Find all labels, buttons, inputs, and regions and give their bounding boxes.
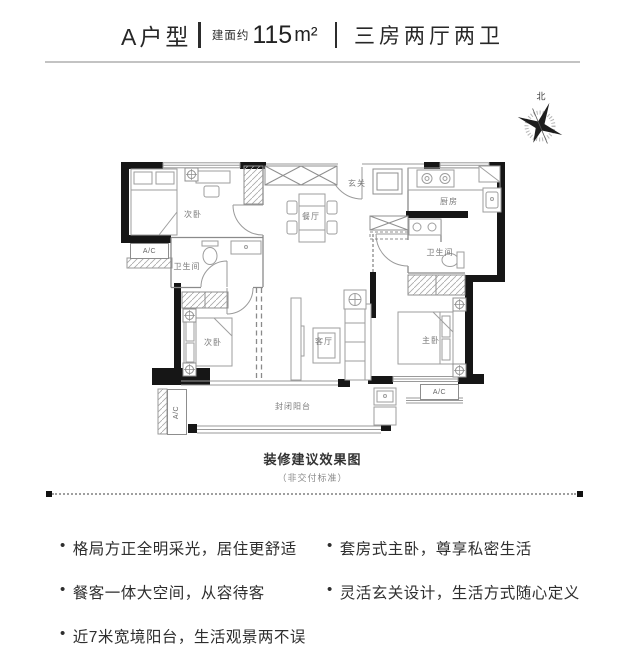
- ac-unit-balcony-left: A/C: [167, 389, 187, 435]
- bullet-icon: •: [60, 537, 66, 554]
- room-label-bath-left: 卫生间: [174, 263, 201, 271]
- feature-text: 灵活玄关设计，生活方式随心定义: [340, 581, 580, 603]
- dotted-divider-end-left: [46, 491, 52, 497]
- room-label-balcony: 封闭阳台: [275, 403, 311, 411]
- dotted-divider-end-right: [577, 491, 583, 497]
- feature-item: • 近7米宽境阳台，生活观景两不误: [60, 625, 306, 647]
- room-label-bedroom-top: 次卧: [184, 211, 202, 219]
- room-label-living: 客厅: [315, 338, 333, 346]
- room-label-kitchen: 厨房: [440, 198, 458, 206]
- feature-item: • 餐客一体大空间，从容待客: [60, 581, 265, 603]
- feature-item: • 格局方正全明采光，居住更舒适: [60, 537, 297, 559]
- bullet-icon: •: [60, 625, 66, 642]
- feature-text: 格局方正全明采光，居住更舒适: [73, 537, 297, 559]
- floorplan-page: A户型 建面约 115 m² 三房两厅两卫: [0, 0, 625, 652]
- compass-rose: [511, 94, 572, 152]
- dotted-divider: [52, 493, 576, 495]
- feature-text: 餐客一体大空间，从容待客: [73, 581, 265, 603]
- compass-north-label: 北: [536, 90, 545, 103]
- feature-item: • 灵活玄关设计，生活方式随心定义: [327, 581, 580, 603]
- room-label-bath-right: 卫生间: [427, 249, 454, 257]
- feature-item: • 套房式主卧，尊享私密生活: [327, 537, 532, 559]
- room-label-bedroom-bottom: 次卧: [204, 339, 222, 347]
- room-label-master: 主卧: [422, 337, 440, 345]
- bullet-icon: •: [60, 581, 66, 598]
- room-label-dining: 餐厅: [302, 213, 320, 221]
- bullet-icon: •: [327, 537, 333, 554]
- plan-caption-subtitle: （非交付标准）: [0, 471, 625, 484]
- feature-text: 套房式主卧，尊享私密生活: [340, 537, 532, 559]
- ac-unit-bottom-right: A/C: [420, 384, 459, 400]
- plan-caption-title: 装修建议效果图: [0, 449, 625, 468]
- bullet-icon: •: [327, 581, 333, 598]
- room-label-entry: 玄关: [348, 180, 366, 188]
- feature-text: 近7米宽境阳台，生活观景两不误: [73, 625, 306, 647]
- ac-unit-top-left: A/C: [130, 243, 169, 259]
